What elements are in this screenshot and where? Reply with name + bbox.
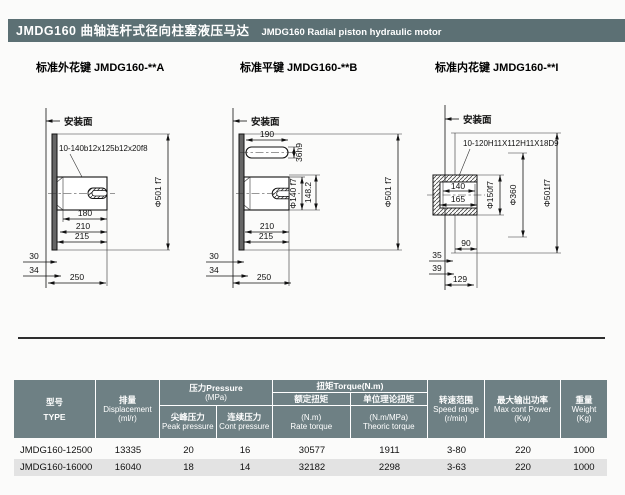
mount-face-label-c: 安装面 [463,114,492,126]
col-disp-cn: 排量 [119,395,136,405]
dim-d360: Φ360 [508,184,518,205]
mount-face-label-b: 安装面 [251,116,280,128]
pressure-group-title: 压力Pressure (MPa) [160,380,272,406]
row-cont: 16 [217,445,273,456]
col-peak-pressure: 尖峰压力 Peak pressure [160,406,217,438]
row-cont: 14 [217,462,273,473]
dim-250-b: 250 [257,272,271,282]
cont-en: Cont pressure [219,422,269,432]
cont-cn: 连续压力 [227,412,261,422]
col-disp-en: Displacement [103,405,151,415]
theoric-unit: (N.m/MPa) [369,413,408,423]
row-power: 220 [485,462,561,473]
theoric-en: Theoric torque [363,422,415,432]
speed-cn: 转速范围 [439,395,473,405]
col-type-cn: 型号 [46,397,63,407]
title-bar: JMDG160 曲轴连杆式径向柱塞液压马达JMDG160 Radial pist… [8,19,625,42]
dim-d501-a: Φ501 f7 [153,177,163,208]
drawing-internal-spline: 安装面 10-120H11X112H11X18D9 140 165 Φ150f7… [427,105,561,290]
row-power: 220 [485,445,561,456]
row-theoric: 2298 [351,462,428,473]
drawing-external-spline: 安装面 10-140b12x125b12x20f8 Φ501 f7 180 21… [23,108,170,288]
dim-165: 165 [451,194,465,204]
dim-d501-c: Φ501f7 [542,179,552,207]
row-rate: 32182 [273,462,351,473]
row-type: JMDG160-12500 [14,445,96,456]
row-disp: 13335 [96,445,160,456]
power-cn: 最大输出功率 [497,395,548,405]
row-weight: 1000 [561,445,607,456]
pressure-unit: (MPa) [205,393,227,403]
dim-36h9: 36h9 [294,143,304,162]
drawing-title-internal-spline: 标准内花键 JMDG160-**I [435,59,558,75]
drawing-title-external-spline: 标准外花键 JMDG160-**A [36,59,164,75]
speed-en: Speed range [433,405,479,415]
dim-129: 129 [453,274,467,284]
row-weight: 1000 [561,462,607,473]
col-theoric-torque: 单位理论扭矩 (N.m/MPa) Theoric torque [351,393,428,438]
weight-unit: (Kg) [576,414,591,424]
weight-cn: 重量 [575,395,592,405]
dim-140: 140 [451,181,465,191]
row-speed: 3-80 [428,445,485,456]
dim-d140: Φ140 f7 [288,178,298,209]
dim-30-b: 30 [209,251,219,261]
dim-d150: Φ150f7 [485,181,495,209]
dim-34-a: 34 [29,265,39,275]
col-type-en: TYPE [43,412,65,422]
spec-table-header: 型号 TYPE 排量 Displacement (ml/r) 压力Pressur… [14,380,607,438]
dim-215-b: 215 [259,231,273,241]
dim-34-b: 34 [209,265,219,275]
dim-190: 190 [260,129,274,139]
dim-148-2: 148.2 [303,182,313,204]
table-row: JMDG160-16000 16040 18 14 32182 2298 3-6… [14,459,607,476]
rate-unit: (N.m) [301,413,321,423]
dim-30-a: 30 [29,251,39,261]
page-title: JMDG160 曲轴连杆式径向柱塞液压马达 [16,24,249,38]
row-type: JMDG160-16000 [14,462,96,473]
section-divider [18,337,605,339]
rate-en: Rate torque [290,422,332,432]
dim-215-a: 215 [75,231,89,241]
row-disp: 16040 [96,462,160,473]
spec-table: 型号 TYPE 排量 Displacement (ml/r) 压力Pressur… [14,380,607,476]
power-en: Max cont Power [494,405,551,415]
dim-250-a: 250 [70,272,84,282]
torque-group-title: 扭矩Torque(N.m) [273,380,427,393]
dim-35: 35 [432,250,442,260]
col-max-power: 最大输出功率 Max cont Power (Kw) [485,380,561,438]
drawing-title-flat-key: 标准平键 JMDG160-**B [240,59,357,75]
row-rate: 30577 [273,445,351,456]
col-group-torque: 扭矩Torque(N.m) 额定扭矩 (N.m) Rate torque 单位理… [273,380,428,438]
col-group-pressure: 压力Pressure (MPa) 尖峰压力 Peak pressure 连续压力… [160,380,273,438]
peak-en: Peak pressure [162,422,214,432]
spline-spec-label-c: 10-120H11X112H11X18D9 [463,139,559,148]
dim-180: 180 [78,208,92,218]
rate-cn: 额定扭矩 [273,393,350,406]
weight-en: Weight [572,405,597,415]
row-speed: 3-63 [428,462,485,473]
theoric-cn: 单位理论扭矩 [351,393,428,406]
speed-unit: (r/min) [444,414,467,424]
dim-210-b: 210 [260,221,274,231]
dim-210-a: 210 [76,221,90,231]
drawing-flat-key: 安装面 190 36h9 Φ140 f7 148.2 Φ501 f7 210 2… [206,108,402,288]
col-weight: 重量 Weight (Kg) [561,380,607,438]
col-disp-unit: (ml/r) [118,414,137,424]
mount-face-label-a: 安装面 [64,116,93,128]
row-theoric: 1911 [351,445,428,456]
pressure-cn: 压力Pressure [189,383,242,393]
power-unit: (Kw) [514,414,530,424]
page-subtitle: JMDG160 Radial piston hydraulic motor [261,27,441,38]
table-row: JMDG160-12500 13335 20 16 30577 1911 3-8… [14,442,607,459]
row-peak: 18 [160,462,217,473]
col-speed-range: 转速范围 Speed range (r/min) [428,380,485,438]
dim-39: 39 [432,263,442,273]
spline-spec-label-a: 10-140b12x125b12x20f8 [59,144,148,153]
col-displacement: 排量 Displacement (ml/r) [96,380,160,438]
row-peak: 20 [160,445,217,456]
col-type: 型号 TYPE [14,380,96,438]
col-cont-pressure: 连续压力 Cont pressure [217,406,273,438]
dim-d501-b: Φ501 f7 [383,177,393,208]
dim-90: 90 [461,238,471,248]
peak-cn: 尖峰压力 [171,412,205,422]
col-rate-torque: 额定扭矩 (N.m) Rate torque [273,393,351,438]
